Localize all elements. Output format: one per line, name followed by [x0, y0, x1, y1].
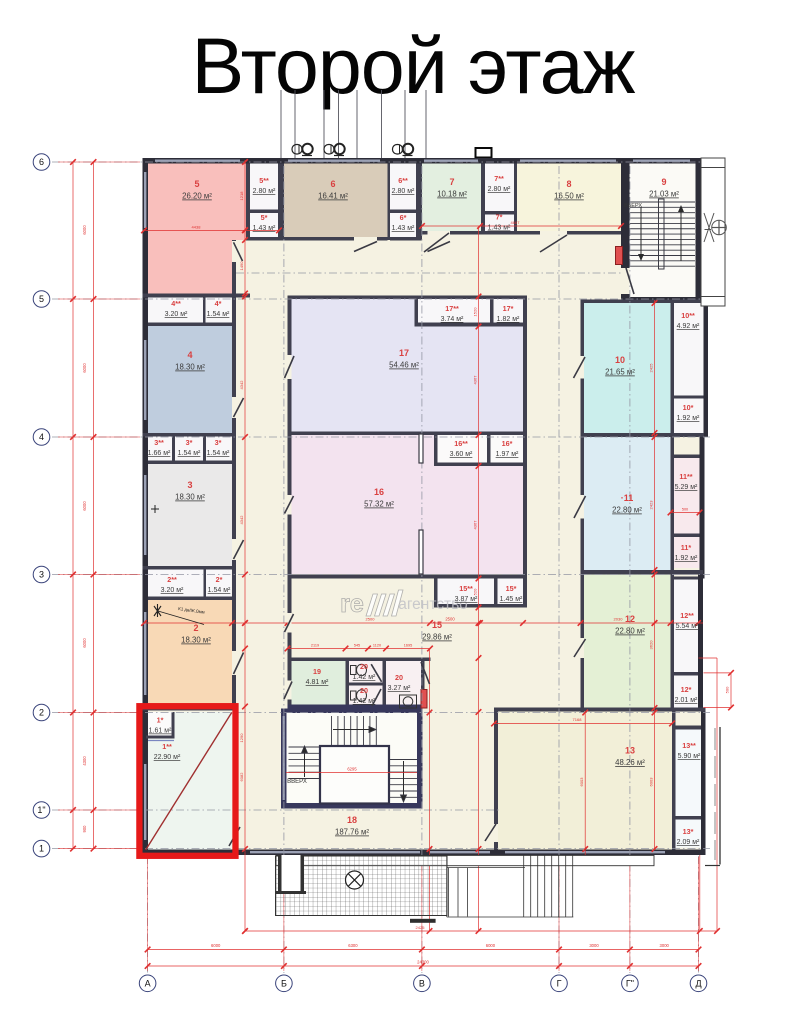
- svg-text:2425: 2425: [649, 363, 654, 373]
- svg-text:4667: 4667: [511, 220, 521, 225]
- svg-text:3.20 м²: 3.20 м²: [161, 587, 184, 594]
- svg-text:1.54 м²: 1.54 м²: [208, 587, 231, 594]
- svg-text:20: 20: [360, 686, 368, 695]
- svg-text:22.90 м²: 22.90 м²: [154, 754, 181, 761]
- svg-text:3620: 3620: [649, 640, 654, 650]
- svg-text:6000: 6000: [486, 943, 496, 948]
- svg-text:22.80 м²: 22.80 м²: [612, 506, 642, 515]
- svg-text:19: 19: [313, 667, 321, 676]
- svg-text:16.50 м²: 16.50 м²: [554, 192, 584, 201]
- svg-text:187.76 м²: 187.76 м²: [335, 828, 369, 837]
- svg-text:8: 8: [566, 179, 571, 189]
- svg-text:3: 3: [187, 480, 192, 490]
- svg-text:5.29 м²: 5.29 м²: [675, 484, 698, 491]
- svg-text:2.80 м²: 2.80 м²: [488, 186, 511, 193]
- svg-text:6*: 6*: [400, 213, 407, 222]
- svg-text:1.43 м²: 1.43 м²: [392, 225, 415, 232]
- svg-text:22.80 м²: 22.80 м²: [615, 627, 645, 636]
- svg-text:6: 6: [39, 157, 44, 167]
- svg-text:5.54 м²: 5.54 м²: [676, 623, 699, 630]
- svg-text:15**: 15**: [459, 584, 473, 593]
- svg-text:10**: 10**: [681, 311, 695, 320]
- svg-text:16**: 16**: [454, 439, 468, 448]
- svg-text:1695: 1695: [404, 644, 412, 648]
- svg-text:6000: 6000: [82, 638, 87, 648]
- svg-text:12*: 12*: [681, 685, 692, 694]
- svg-text:520: 520: [473, 588, 478, 595]
- svg-text:2030: 2030: [614, 617, 624, 622]
- svg-text:1.54 м²: 1.54 м²: [178, 450, 201, 457]
- svg-text:3.27 м²: 3.27 м²: [388, 685, 411, 692]
- svg-text:7**: 7**: [494, 174, 504, 183]
- svg-text:4*: 4*: [215, 299, 222, 308]
- svg-text:5.90 м²: 5.90 м²: [678, 753, 701, 760]
- svg-text:Г": Г": [626, 978, 634, 988]
- svg-text:29.86 м²: 29.86 м²: [422, 633, 452, 642]
- svg-text:13**: 13**: [682, 741, 696, 750]
- svg-text:3*: 3*: [215, 438, 222, 447]
- svg-text:3000: 3000: [589, 943, 599, 948]
- svg-text:57.32 м²: 57.32 м²: [364, 500, 394, 509]
- svg-text:1520: 1520: [473, 307, 478, 317]
- svg-text:re: re: [340, 590, 364, 618]
- svg-text:1.43 м²: 1.43 м²: [253, 225, 276, 232]
- svg-text:16*: 16*: [502, 439, 513, 448]
- svg-text:18.30 м²: 18.30 м²: [181, 636, 211, 645]
- svg-text:Б: Б: [281, 978, 287, 988]
- svg-text:6300: 6300: [348, 943, 358, 948]
- svg-text:1.92 м²: 1.92 м²: [677, 415, 700, 422]
- svg-text:1.45 м²: 1.45 м²: [500, 596, 523, 603]
- svg-text:2423: 2423: [649, 500, 654, 510]
- svg-text:11**: 11**: [679, 472, 692, 481]
- svg-text:4300: 4300: [82, 756, 87, 766]
- svg-text:6082: 6082: [239, 772, 244, 782]
- svg-text:6000: 6000: [82, 501, 87, 511]
- svg-text:6000: 6000: [82, 225, 87, 235]
- svg-text:24300: 24300: [417, 960, 429, 965]
- svg-text:4342: 4342: [239, 515, 244, 525]
- svg-text:ВВЕРХ: ВВЕРХ: [624, 203, 642, 209]
- svg-text:2119: 2119: [311, 644, 319, 648]
- svg-text:4438: 4438: [192, 224, 202, 229]
- svg-text:1.97 м²: 1.97 м²: [496, 451, 519, 458]
- svg-text:17**: 17**: [445, 304, 459, 313]
- svg-text:2: 2: [193, 623, 198, 633]
- svg-text:21.03 м²: 21.03 м²: [649, 190, 679, 199]
- svg-text:2.80 м²: 2.80 м²: [392, 188, 415, 195]
- svg-text:Г: Г: [557, 978, 562, 988]
- svg-text:3.20 м²: 3.20 м²: [165, 311, 188, 318]
- svg-text:5*: 5*: [261, 213, 268, 222]
- svg-text:10.18 м²: 10.18 м²: [437, 190, 467, 199]
- svg-text:6**: 6**: [398, 176, 408, 185]
- svg-text:20: 20: [360, 662, 368, 671]
- svg-text:3.87 м²: 3.87 м²: [455, 596, 478, 603]
- svg-text:13*: 13*: [683, 827, 694, 836]
- svg-text:9: 9: [661, 177, 666, 187]
- svg-text:2*: 2*: [216, 575, 223, 584]
- svg-text:500: 500: [682, 508, 688, 512]
- svg-text:48.26 м²: 48.26 м²: [615, 758, 645, 767]
- svg-text:4367: 4367: [473, 375, 478, 385]
- svg-text:5: 5: [194, 179, 199, 189]
- svg-text:1.66 м²: 1.66 м²: [148, 450, 171, 457]
- svg-text:18: 18: [347, 815, 357, 825]
- svg-text:7: 7: [449, 177, 454, 187]
- svg-text:4.81 м²: 4.81 м²: [306, 679, 329, 686]
- svg-text:3**: 3**: [154, 438, 164, 447]
- svg-text:500: 500: [725, 686, 730, 693]
- svg-text:1.82 м²: 1.82 м²: [497, 316, 520, 323]
- svg-text:4367: 4367: [473, 520, 478, 530]
- svg-text:26.20 м²: 26.20 м²: [182, 192, 212, 201]
- svg-text:В: В: [419, 978, 425, 988]
- svg-text:1290: 1290: [239, 733, 244, 743]
- svg-text:·11: ·11: [621, 493, 634, 503]
- svg-text:10: 10: [615, 355, 625, 365]
- svg-text:1120: 1120: [373, 644, 381, 648]
- svg-text:2500: 2500: [366, 617, 376, 622]
- svg-text:4**: 4**: [171, 299, 181, 308]
- svg-text:10*: 10*: [683, 403, 694, 412]
- svg-text:6000: 6000: [211, 943, 221, 948]
- svg-text:900: 900: [82, 825, 87, 833]
- svg-text:18.30 м²: 18.30 м²: [175, 493, 205, 502]
- svg-text:6003: 6003: [649, 777, 654, 787]
- svg-text:6295: 6295: [347, 767, 357, 772]
- svg-text:17: 17: [399, 348, 409, 358]
- svg-text:1218: 1218: [239, 191, 244, 201]
- svg-text:12**: 12**: [680, 611, 694, 620]
- svg-text:3.74 м²: 3.74 м²: [441, 316, 464, 323]
- svg-text:4.92 м²: 4.92 м²: [677, 323, 700, 330]
- svg-text:2425: 2425: [416, 925, 426, 930]
- svg-text:2500: 2500: [445, 617, 455, 622]
- svg-text:5: 5: [39, 294, 44, 304]
- svg-text:545: 545: [354, 644, 360, 648]
- svg-text:1.54 м²: 1.54 м²: [207, 311, 230, 318]
- svg-text:3*: 3*: [186, 438, 193, 447]
- svg-text:1.61 м²: 1.61 м²: [149, 728, 172, 735]
- svg-text:1.42 м²: 1.42 м²: [353, 674, 376, 681]
- svg-text:16: 16: [374, 487, 384, 497]
- svg-text:4: 4: [187, 350, 192, 360]
- svg-text:20: 20: [395, 673, 403, 682]
- svg-text:7168: 7168: [573, 717, 583, 722]
- svg-text:2: 2: [39, 708, 44, 718]
- svg-text:3000: 3000: [660, 943, 670, 948]
- svg-text:1.42 м²: 1.42 м²: [353, 698, 376, 705]
- svg-text:3: 3: [39, 570, 44, 580]
- svg-text:1**: 1**: [162, 742, 172, 751]
- svg-text:Второй этаж: Второй этаж: [192, 21, 636, 110]
- svg-text:2**: 2**: [167, 575, 177, 584]
- svg-text:15: 15: [432, 620, 442, 630]
- svg-text:1.54 м²: 1.54 м²: [207, 450, 230, 457]
- svg-text:16.41 м²: 16.41 м²: [318, 192, 348, 201]
- svg-text:ВВЕРХ: ВВЕРХ: [287, 779, 307, 785]
- svg-text:6003: 6003: [579, 777, 584, 787]
- svg-text:18.30 м²: 18.30 м²: [175, 363, 205, 372]
- svg-text:54.46 м²: 54.46 м²: [389, 361, 419, 370]
- svg-text:1: 1: [39, 844, 44, 854]
- svg-text:1": 1": [37, 805, 45, 815]
- svg-text:13: 13: [625, 746, 635, 756]
- svg-text:12: 12: [625, 614, 635, 624]
- svg-text:2.01 м²: 2.01 м²: [675, 697, 698, 704]
- svg-text:3.60 м²: 3.60 м²: [450, 451, 473, 458]
- svg-text:1490: 1490: [239, 261, 244, 271]
- svg-text:15*: 15*: [506, 584, 517, 593]
- svg-text:1.92 м²: 1.92 м²: [675, 555, 698, 562]
- svg-text:1*: 1*: [157, 716, 164, 725]
- svg-text:Д: Д: [695, 978, 701, 988]
- svg-text:6: 6: [330, 179, 335, 189]
- svg-text:5**: 5**: [259, 176, 269, 185]
- svg-text:4: 4: [39, 432, 44, 442]
- svg-text:4342: 4342: [239, 380, 244, 390]
- svg-text:11*: 11*: [681, 543, 692, 552]
- svg-text:1.43 м²: 1.43 м²: [488, 225, 511, 232]
- svg-text:2.80 м²: 2.80 м²: [253, 188, 276, 195]
- svg-text:А: А: [145, 978, 151, 988]
- svg-text:21.65 м²: 21.65 м²: [605, 368, 635, 377]
- svg-text:17*: 17*: [503, 304, 514, 313]
- svg-text:6000: 6000: [82, 363, 87, 373]
- svg-text:7*: 7*: [496, 213, 503, 222]
- svg-text:2.09 м²: 2.09 м²: [677, 839, 700, 846]
